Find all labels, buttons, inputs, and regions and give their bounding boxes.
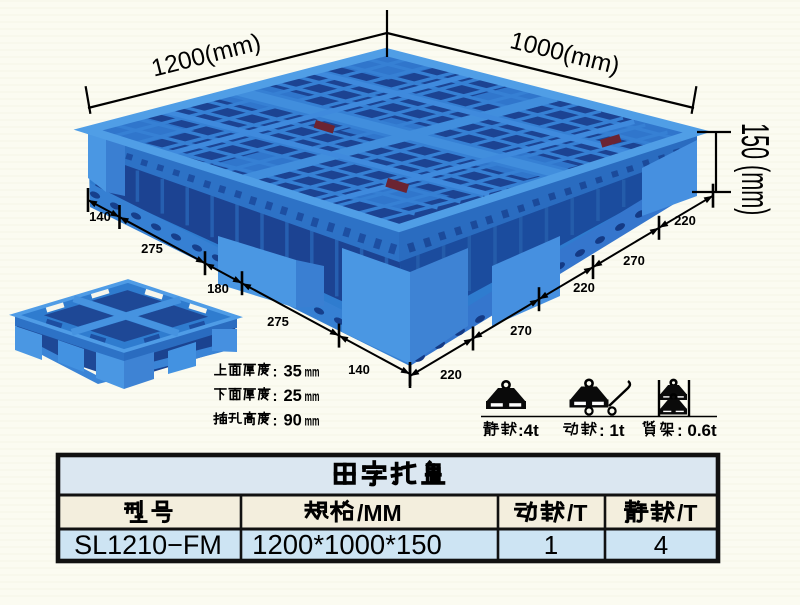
svg-text:mm: mm [305,413,320,428]
svg-text::: : [273,412,278,429]
svg-text:270: 270 [510,323,532,338]
svg-text:90: 90 [284,411,302,429]
svg-text:270: 270 [623,253,645,268]
svg-text:1200*1000*150: 1200*1000*150 [252,529,442,560]
svg-text:275: 275 [141,241,163,256]
svg-text:mm: mm [305,389,320,404]
svg-text::: : [273,363,278,380]
svg-text:: 0.6t: : 0.6t [677,421,717,440]
svg-text:/MM: /MM [357,500,402,526]
svg-text:220: 220 [674,213,696,228]
svg-text:: 1t: : 1t [599,421,625,440]
svg-text:/T: /T [677,500,697,526]
svg-text:25: 25 [284,387,302,405]
svg-text:140: 140 [89,209,111,224]
svg-text:mm: mm [305,364,320,379]
svg-text:220: 220 [440,367,462,382]
svg-text::4t: :4t [518,421,539,440]
svg-text:150 (mm): 150 (mm) [733,123,776,215]
svg-text:1: 1 [544,530,558,560]
svg-text:SL1210−FM: SL1210−FM [74,530,222,560]
svg-text:220: 220 [573,280,595,295]
svg-text:/T: /T [567,500,587,526]
svg-text::: : [273,388,278,405]
svg-text:4: 4 [654,530,668,560]
svg-text:180: 180 [207,281,229,296]
svg-text:35: 35 [284,362,302,380]
svg-text:140: 140 [348,362,370,377]
svg-text:275: 275 [267,314,289,329]
